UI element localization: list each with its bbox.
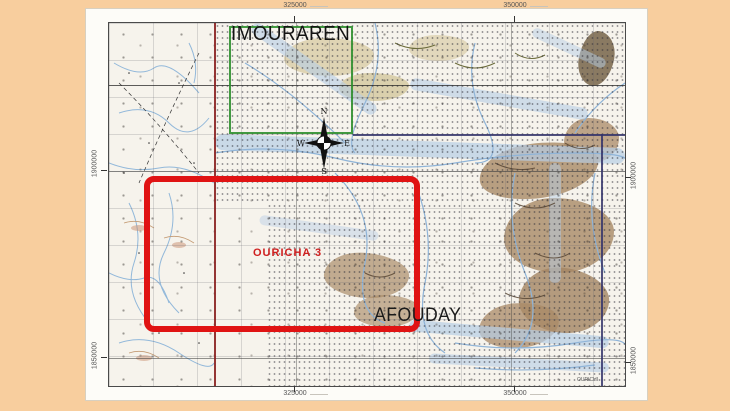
map-image: N S W E IMOURAREN OURICHA 3 AFOUDAY OURI… [108, 22, 626, 387]
label-corner-note: OURICHI [577, 377, 598, 383]
coord-right-1900000: 1900000 [631, 159, 638, 193]
label-imouraren: IMOURAREN [231, 23, 350, 46]
compass-north-label: N [321, 107, 328, 116]
coord-left-1900000: 1900000 [92, 147, 99, 181]
coord-dash [530, 394, 548, 395]
coord-top-325000: 325000 [275, 2, 315, 9]
grid-major-line [109, 358, 625, 359]
coord-bottom-325000: 325000 [275, 390, 315, 397]
grid-tick [514, 16, 515, 22]
compass-west-label: W [297, 139, 306, 148]
grid-major-line [511, 23, 512, 386]
grid-tick [101, 357, 107, 358]
grid-tick [514, 386, 515, 392]
grid-tick [625, 362, 631, 363]
coord-dash [310, 394, 328, 395]
boundary-navy-line-v [601, 134, 603, 386]
boundary-navy-line-h [353, 134, 625, 136]
grid-tick [294, 386, 295, 392]
compass-east-label: E [344, 139, 350, 148]
grid-tick [625, 177, 631, 178]
coord-dash [310, 6, 328, 7]
label-ouricha3: OURICHA 3 [253, 247, 322, 259]
coord-right-1850000: 1850000 [631, 344, 638, 378]
grid-tick [101, 170, 107, 171]
grid-major-line [109, 85, 625, 86]
label-afouday: AFOUDAY [374, 305, 461, 327]
compass-rose: N S W E [294, 103, 354, 175]
coord-left-1850000: 1850000 [92, 339, 99, 373]
coord-dash [530, 6, 548, 7]
coord-top-350000: 350000 [495, 2, 535, 9]
coord-bottom-350000: 350000 [495, 390, 535, 397]
grid-tick [294, 16, 295, 22]
grid-major-line [109, 171, 625, 172]
slide-canvas: N S W E IMOURAREN OURICHA 3 AFOUDAY OURI… [0, 0, 730, 411]
